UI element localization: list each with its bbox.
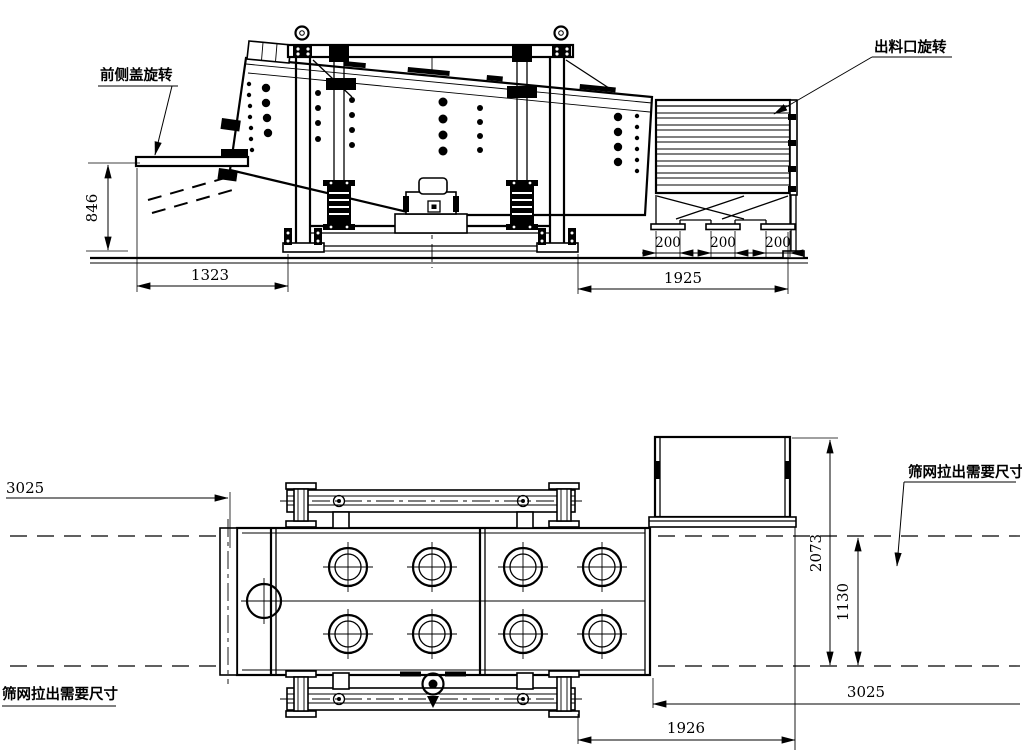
- plan-discharge-box: [649, 437, 796, 750]
- mesh-pullout-left-label: 筛网拉出需要尺寸: [2, 685, 118, 703]
- side-elevation-view: 前侧盖旋转 出料口旋转 846 1323: [83, 27, 952, 295]
- dim-1323: 1323: [137, 168, 288, 292]
- plan-screen-body: [220, 519, 650, 684]
- dim-2073-text: 2073: [807, 534, 825, 572]
- dim-1926-text: 1926: [667, 719, 705, 737]
- dim-3025-left-text: 3025: [6, 479, 44, 497]
- discharge-hopper: [651, 195, 795, 230]
- dim-200-1-text: 200: [655, 235, 681, 251]
- dim-200-3-text: 200: [765, 235, 791, 251]
- front-cover-label: 前侧盖旋转: [100, 66, 173, 84]
- dim-2073: 2073: [792, 438, 838, 665]
- plan-rail-bottom: [280, 671, 582, 717]
- feed-inlet-box: [247, 41, 291, 63]
- plan-rail-top: [280, 483, 582, 528]
- lifting-eye-left: [293, 27, 312, 59]
- dim-3025-right-text: 3025: [847, 683, 885, 701]
- dim-200-outlets: 200 200 200: [642, 231, 802, 257]
- callout-front-cover: 前侧盖旋转: [98, 66, 178, 155]
- front-cover-open: [136, 149, 248, 213]
- dim-200-2-text: 200: [710, 235, 736, 251]
- lifting-eye-right: [552, 27, 571, 59]
- dim-3025-left: 3025: [6, 479, 230, 548]
- dim-1926: 1926: [578, 714, 795, 744]
- dim-3025-right: 3025: [653, 678, 1020, 708]
- callout-mesh-pullout-right: 筛网拉出需要尺寸: [897, 463, 1022, 566]
- engineering-drawing-canvas: 前侧盖旋转 出料口旋转 846 1323: [0, 0, 1022, 752]
- vibrating-screen-drawing: 前侧盖旋转 出料口旋转 846 1323: [0, 0, 1022, 752]
- callout-discharge-port: 出料口旋转: [774, 38, 952, 114]
- callout-mesh-pullout-left: 筛网拉出需要尺寸: [2, 685, 118, 706]
- dim-1130-text: 1130: [834, 583, 852, 621]
- discharge-port-label: 出料口旋转: [874, 38, 947, 56]
- plan-view: 筛网拉出需要尺寸 筛网拉出需要尺寸 3025 2073 1130: [2, 437, 1022, 750]
- dim-846: 846: [83, 163, 140, 251]
- dim-846-text: 846: [83, 194, 101, 223]
- dim-1323-text: 1323: [191, 266, 229, 284]
- floor-line: [90, 258, 808, 263]
- mesh-pullout-right-label: 筛网拉出需要尺寸: [908, 463, 1022, 481]
- dim-1130: 1130: [834, 538, 858, 665]
- dim-1925-text: 1925: [664, 269, 702, 287]
